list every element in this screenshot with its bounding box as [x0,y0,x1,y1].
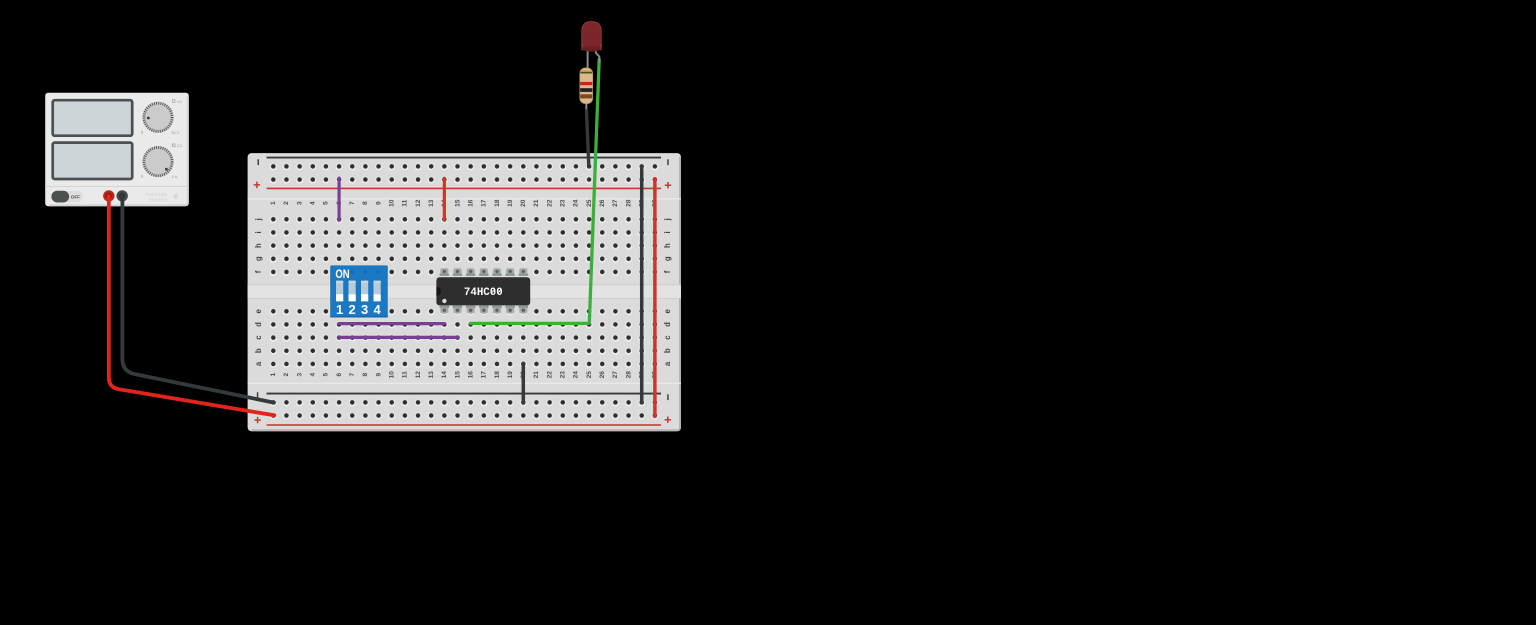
svg-text:19: 19 [507,199,514,207]
svg-text:6: 6 [336,373,343,377]
svg-text:h: h [663,243,672,248]
svg-text:j: j [663,218,672,221]
svg-text:12: 12 [415,199,422,207]
svg-text:e: e [663,308,672,313]
svg-text:8: 8 [362,373,369,377]
svg-text:f: f [663,270,672,273]
svg-text:d: d [254,322,263,327]
svg-text:f: f [254,270,263,273]
svg-text:24: 24 [573,371,580,379]
svg-text:h: h [254,243,263,248]
svg-text:b: b [663,348,672,353]
svg-text:9: 9 [375,373,382,377]
svg-text:7: 7 [349,373,356,377]
svg-text:8: 8 [362,201,369,205]
svg-text:16: 16 [467,199,474,207]
svg-text:25: 25 [586,371,593,379]
svg-text:18: 18 [494,371,501,379]
svg-text:VOLTAGE: VOLTAGE [145,192,168,198]
svg-text:11: 11 [402,371,409,378]
svg-text:a: a [663,361,672,366]
svg-text:7: 7 [349,201,356,205]
svg-text:3: 3 [296,201,303,205]
svg-text:3: 3 [361,302,368,317]
svg-text:c: c [663,335,672,340]
svg-text:1: 1 [270,373,277,377]
svg-text:20: 20 [520,199,527,207]
svg-text:30 V: 30 V [171,130,180,135]
svg-text:16: 16 [467,371,474,379]
svg-text:15: 15 [454,371,461,379]
svg-text:j: j [254,218,263,221]
svg-text:26: 26 [599,371,606,379]
svg-text:g: g [663,256,672,261]
svg-text:9: 9 [375,201,382,205]
svg-text:1: 1 [270,201,277,205]
svg-text:4: 4 [374,302,382,317]
svg-text:26: 26 [599,199,606,207]
svg-text:CC: CC [177,143,183,148]
svg-text:4: 4 [310,201,317,205]
svg-text:SUPPLY: SUPPLY [149,197,169,203]
svg-text:2: 2 [283,201,290,205]
svg-text:1: 1 [336,302,343,317]
svg-text:27: 27 [612,371,619,379]
svg-text:23: 23 [560,199,567,207]
svg-text:i: i [663,231,672,233]
svg-text:10: 10 [389,199,396,207]
svg-text:VC: VC [177,99,183,104]
svg-text:14: 14 [441,371,448,379]
svg-text:g: g [254,256,263,261]
svg-text:13: 13 [428,371,435,379]
svg-text:24: 24 [573,199,580,207]
svg-text:25: 25 [586,199,593,207]
svg-text:b: b [254,348,263,353]
svg-text:28: 28 [625,371,632,379]
svg-text:e: e [254,308,263,313]
svg-text:i: i [254,231,263,233]
svg-text:28: 28 [625,199,632,207]
svg-text:ON: ON [335,268,349,281]
svg-text:4: 4 [310,373,317,377]
svg-text:15: 15 [454,199,461,207]
svg-text:3: 3 [296,373,303,377]
svg-text:17: 17 [481,371,488,379]
svg-text:21: 21 [533,371,540,379]
svg-text:13: 13 [428,199,435,207]
svg-text:21: 21 [533,199,540,207]
svg-text:22: 22 [546,371,553,379]
svg-text:2: 2 [349,302,356,317]
svg-text:27: 27 [612,199,619,207]
svg-text:d: d [663,322,672,327]
svg-text:OFF: OFF [71,194,80,199]
svg-text:5 A: 5 A [172,174,178,179]
svg-text:a: a [254,361,263,366]
svg-text:19: 19 [507,371,514,379]
svg-text:c: c [254,335,263,340]
svg-text:10: 10 [389,371,396,379]
svg-text:5: 5 [323,373,330,377]
svg-text:11: 11 [402,199,409,206]
svg-text:74HC00: 74HC00 [464,287,503,299]
svg-text:5: 5 [323,201,330,205]
svg-text:22: 22 [546,199,553,207]
svg-text:12: 12 [415,371,422,379]
svg-text:2: 2 [283,373,290,377]
svg-text:23: 23 [560,371,567,379]
svg-text:17: 17 [481,199,488,207]
svg-text:18: 18 [494,199,501,207]
